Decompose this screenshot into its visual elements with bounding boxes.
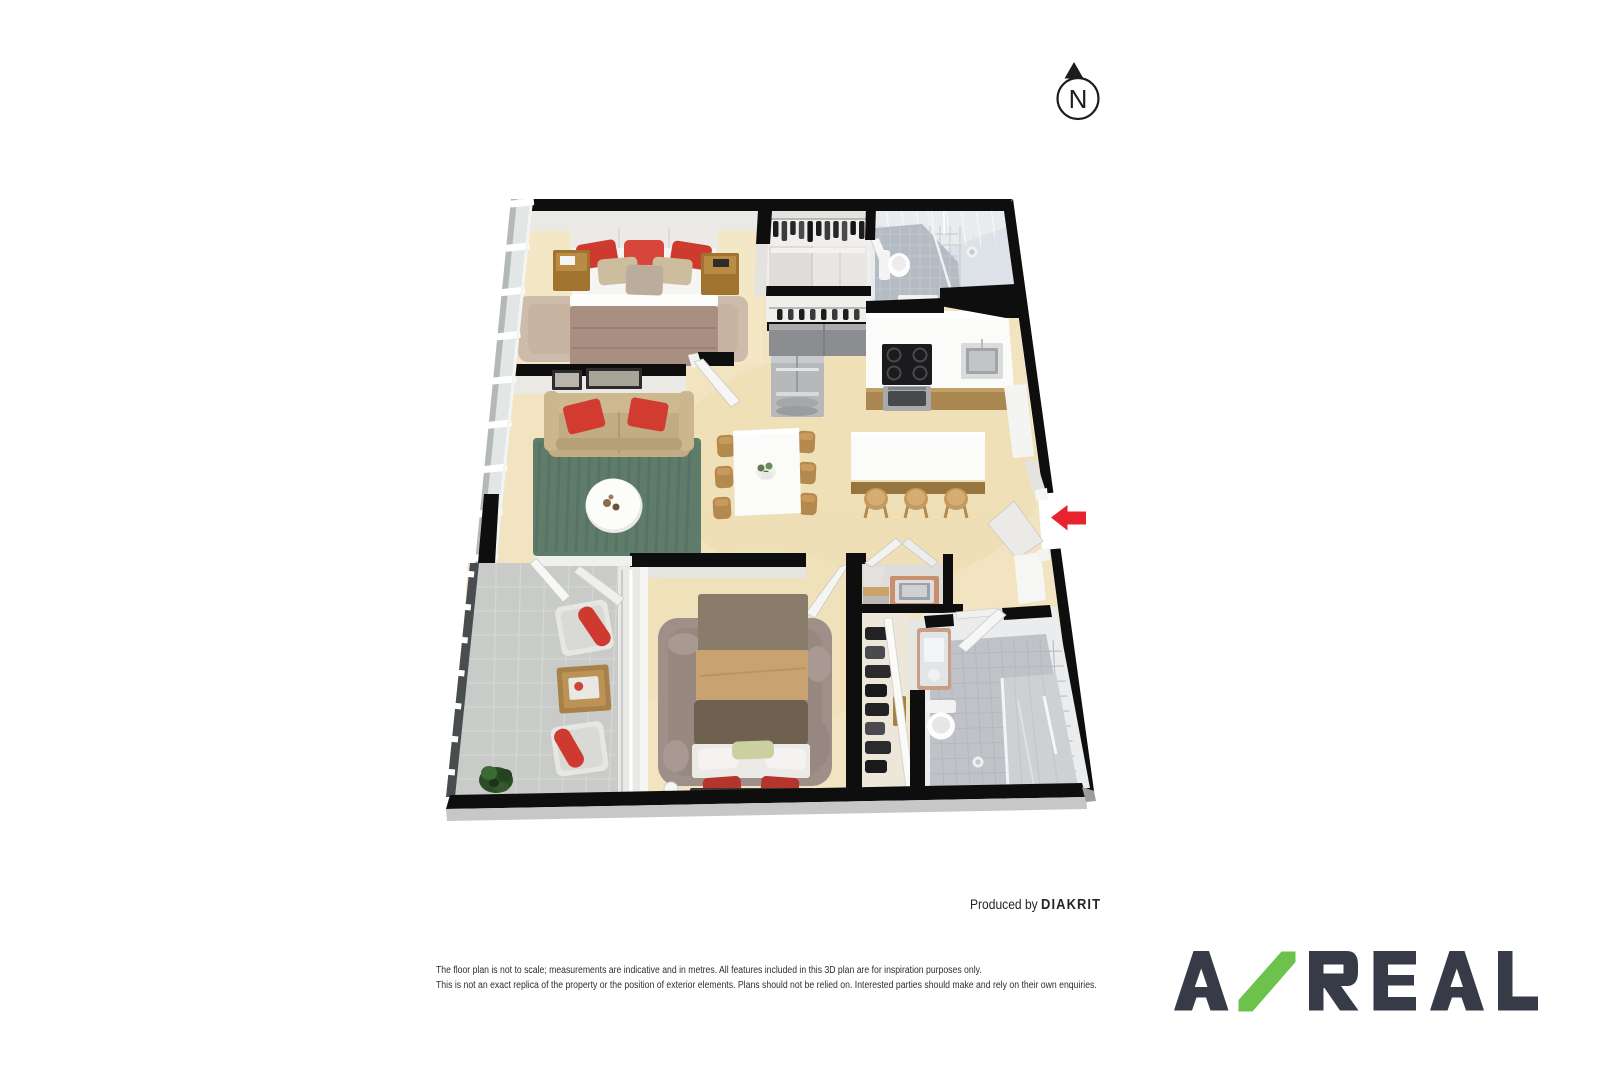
svg-text:N: N — [1069, 84, 1088, 114]
